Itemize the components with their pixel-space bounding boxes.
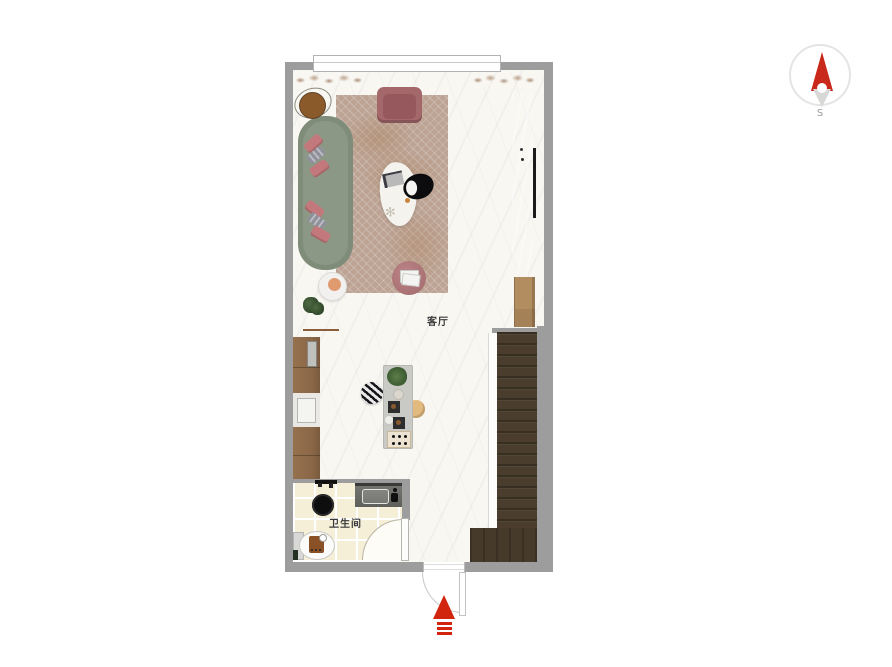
window-top (313, 55, 501, 72)
dried-plants-right (473, 72, 535, 87)
compass-center-dot (817, 83, 827, 93)
entrance-arrow-head (433, 595, 455, 619)
stool-striped (361, 382, 383, 404)
compass-icon: S (789, 44, 851, 124)
toilet-seat (309, 536, 324, 553)
compass-south-label: S (789, 108, 851, 119)
round-ottoman (392, 261, 426, 295)
kitchen-counter (293, 337, 320, 482)
entrance-arrow-bar (437, 622, 452, 625)
books (401, 273, 420, 287)
straw-hat (299, 92, 326, 119)
armchair (377, 87, 422, 123)
wall-left (285, 62, 293, 572)
counter-seam (293, 455, 320, 456)
bathroom-vanity (355, 483, 402, 507)
flower-sprig-icon: ✻ (385, 206, 397, 220)
faucet-figure (391, 488, 398, 502)
bathroom-wall-right (402, 479, 410, 520)
wall-right (544, 62, 553, 572)
wall-bottom-left (285, 562, 423, 572)
kitchen-sink (297, 398, 316, 423)
island-bottle-crate (387, 431, 411, 448)
counter-tray (307, 341, 317, 367)
kitchen-island (383, 365, 413, 449)
magazine (382, 170, 404, 188)
vanity-sink (362, 489, 389, 504)
entrance-arrow-bar (437, 627, 452, 630)
dried-plants-left (295, 72, 363, 87)
wall-stairs-backing (537, 326, 545, 572)
trash-bin (293, 550, 298, 560)
entrance-opening (423, 562, 465, 572)
sofa (298, 116, 353, 270)
wood-cabinet (514, 277, 535, 327)
island-plate (393, 389, 404, 400)
wardrobe-knobs (520, 148, 523, 151)
sofa-pillow (310, 225, 332, 244)
potted-plant (303, 295, 325, 319)
marble-wardrobe (512, 93, 533, 277)
living-room-label: 客厅 (427, 313, 449, 328)
island-plant (387, 367, 408, 386)
plant-leaves (311, 302, 324, 315)
counter-seam (293, 367, 320, 368)
bathroom-door-leaf (401, 518, 409, 561)
wardrobe-handle (533, 148, 536, 218)
shower-drain (312, 494, 334, 516)
kitchen-sink-section (293, 393, 320, 427)
page: ✻ (0, 0, 892, 667)
compass-ring (789, 44, 851, 106)
entrance-door-leaf (459, 572, 466, 616)
bathroom-label: 卫生间 (329, 515, 362, 530)
decor-orange-dot (405, 198, 410, 203)
entrance-arrow-bar (437, 632, 452, 635)
wall-bottom-right (463, 562, 553, 572)
floor-plan: ✻ (285, 62, 553, 572)
stairs-landing (470, 528, 537, 562)
wall-bench (303, 329, 339, 331)
island-dark-plate (388, 401, 400, 413)
island-dark-plate (393, 417, 405, 429)
shower-fixture (315, 480, 337, 484)
staircase (497, 332, 537, 528)
decor-peach (328, 278, 341, 291)
